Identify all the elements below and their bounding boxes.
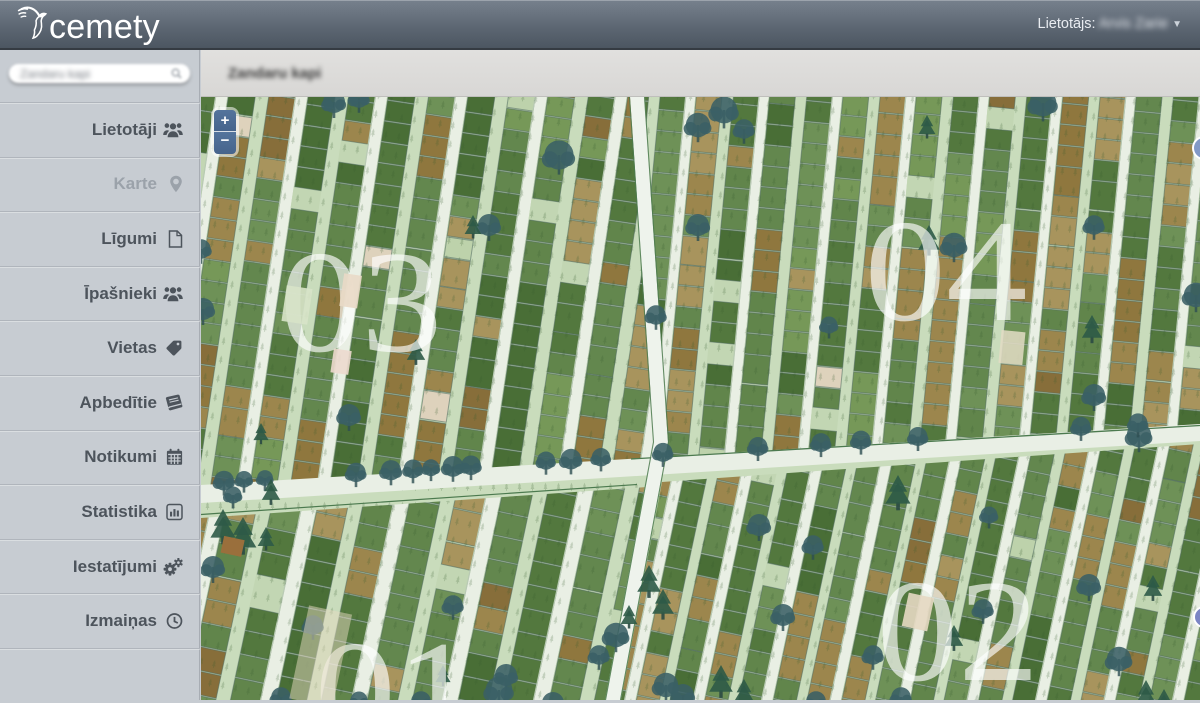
svg-text:04: 04 (865, 190, 1028, 352)
svg-text:02: 02 (877, 550, 1040, 700)
